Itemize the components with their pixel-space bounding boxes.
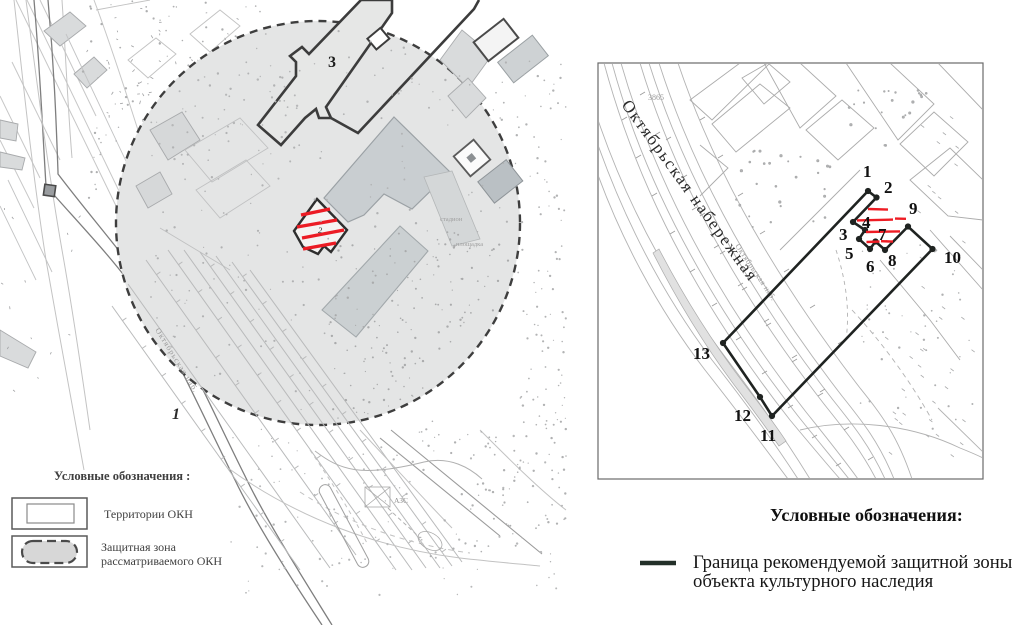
svg-text:стадион: стадион <box>440 216 463 223</box>
svg-text:Условные обозначения :: Условные обозначения : <box>54 469 190 483</box>
svg-text:рассматриваемого ОКН: рассматриваемого ОКН <box>101 554 222 568</box>
svg-text:11: 11 <box>760 426 776 445</box>
svg-text:4: 4 <box>862 213 871 232</box>
svg-text:13: 13 <box>693 344 710 363</box>
svg-text:АЗС: АЗС <box>394 496 408 505</box>
svg-text:7: 7 <box>878 225 887 244</box>
svg-text:Защитная зона: Защитная зона <box>101 540 177 554</box>
svg-text:Территории ОКН: Территории ОКН <box>104 507 193 521</box>
svg-text:2: 2 <box>884 178 893 197</box>
svg-text:6: 6 <box>866 257 875 276</box>
svg-text:12: 12 <box>734 406 751 425</box>
svg-text:3: 3 <box>328 54 336 71</box>
svg-text:объекта культурного наследия: объекта культурного наследия <box>693 571 934 592</box>
svg-text:9: 9 <box>909 199 918 218</box>
svg-text:3865: 3865 <box>648 93 664 102</box>
svg-text:5: 5 <box>845 244 854 263</box>
svg-text:8: 8 <box>888 251 897 270</box>
svg-text:Условные обозначения:: Условные обозначения: <box>770 505 963 525</box>
svg-text:1: 1 <box>172 406 180 423</box>
svg-text:3: 3 <box>839 225 848 244</box>
svg-text:Граница рекомендуемой защитной: Граница рекомендуемой защитной зоны <box>693 552 1013 573</box>
svg-text:1: 1 <box>863 162 872 181</box>
svg-text:10: 10 <box>944 248 961 267</box>
svg-text:площадка: площадка <box>456 241 483 248</box>
